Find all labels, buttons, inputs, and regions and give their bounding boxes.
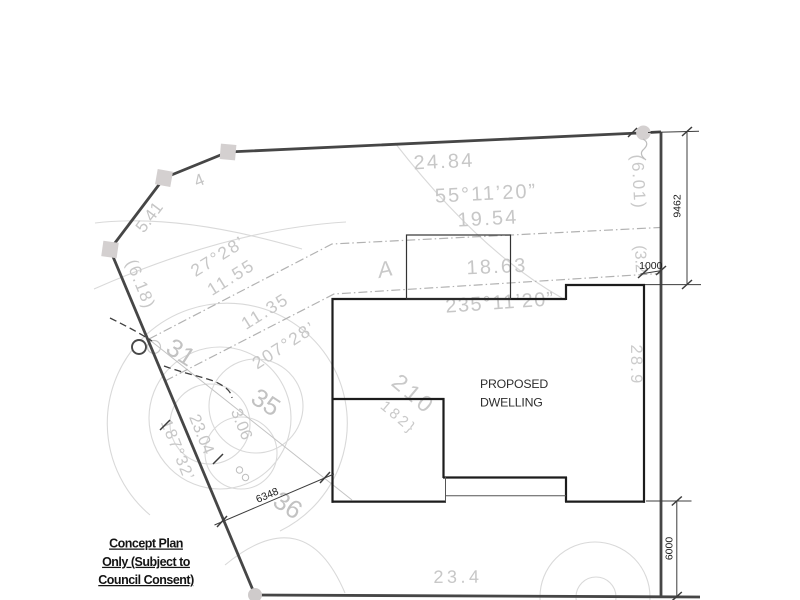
svg-text:Only (Subject to: Only (Subject to (102, 555, 191, 569)
svg-text:5.41: 5.41 (132, 198, 167, 236)
svg-text:11.35: 11.35 (238, 289, 293, 334)
svg-text:PROPOSED: PROPOSED (480, 377, 548, 391)
svg-text:18.63: 18.63 (466, 255, 528, 280)
svg-text:9462: 9462 (672, 194, 684, 218)
svg-text:19.54: 19.54 (457, 206, 519, 231)
svg-text:23.04: 23.04 (185, 412, 217, 457)
svg-text:235°11’20”: 235°11’20” (445, 288, 556, 318)
svg-text:A: A (373, 255, 395, 283)
svg-text:3.06: 3.06 (227, 406, 256, 443)
svg-text:1000: 1000 (639, 260, 663, 272)
svg-text:DWELLING: DWELLING (480, 395, 543, 409)
svg-text:35: 35 (246, 383, 285, 422)
svg-text:4: 4 (191, 170, 207, 191)
svg-text:(6.01): (6.01) (628, 154, 650, 210)
svg-text:24.84: 24.84 (413, 150, 475, 175)
svg-text:28.9: 28.9 (627, 345, 645, 386)
svg-text:23.4: 23.4 (433, 567, 482, 587)
svg-text:55°11’20”: 55°11’20” (434, 180, 537, 207)
svg-text:Council Consent): Council Consent) (98, 573, 194, 587)
svg-text:Concept Plan: Concept Plan (109, 537, 183, 551)
svg-text:6000: 6000 (664, 537, 676, 561)
